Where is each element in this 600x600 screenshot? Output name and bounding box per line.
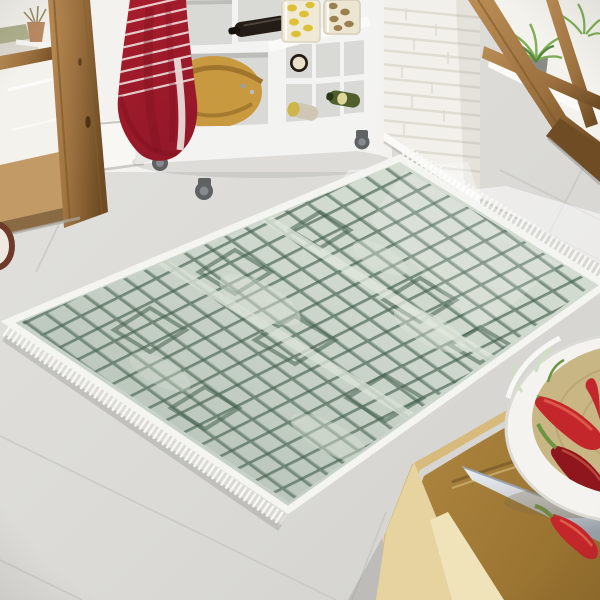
kitchen-rug-scene [0, 0, 600, 600]
photo-stage: Kitchen scene with a sage green diamond-… [0, 0, 600, 600]
vignette-overlay [0, 0, 600, 600]
